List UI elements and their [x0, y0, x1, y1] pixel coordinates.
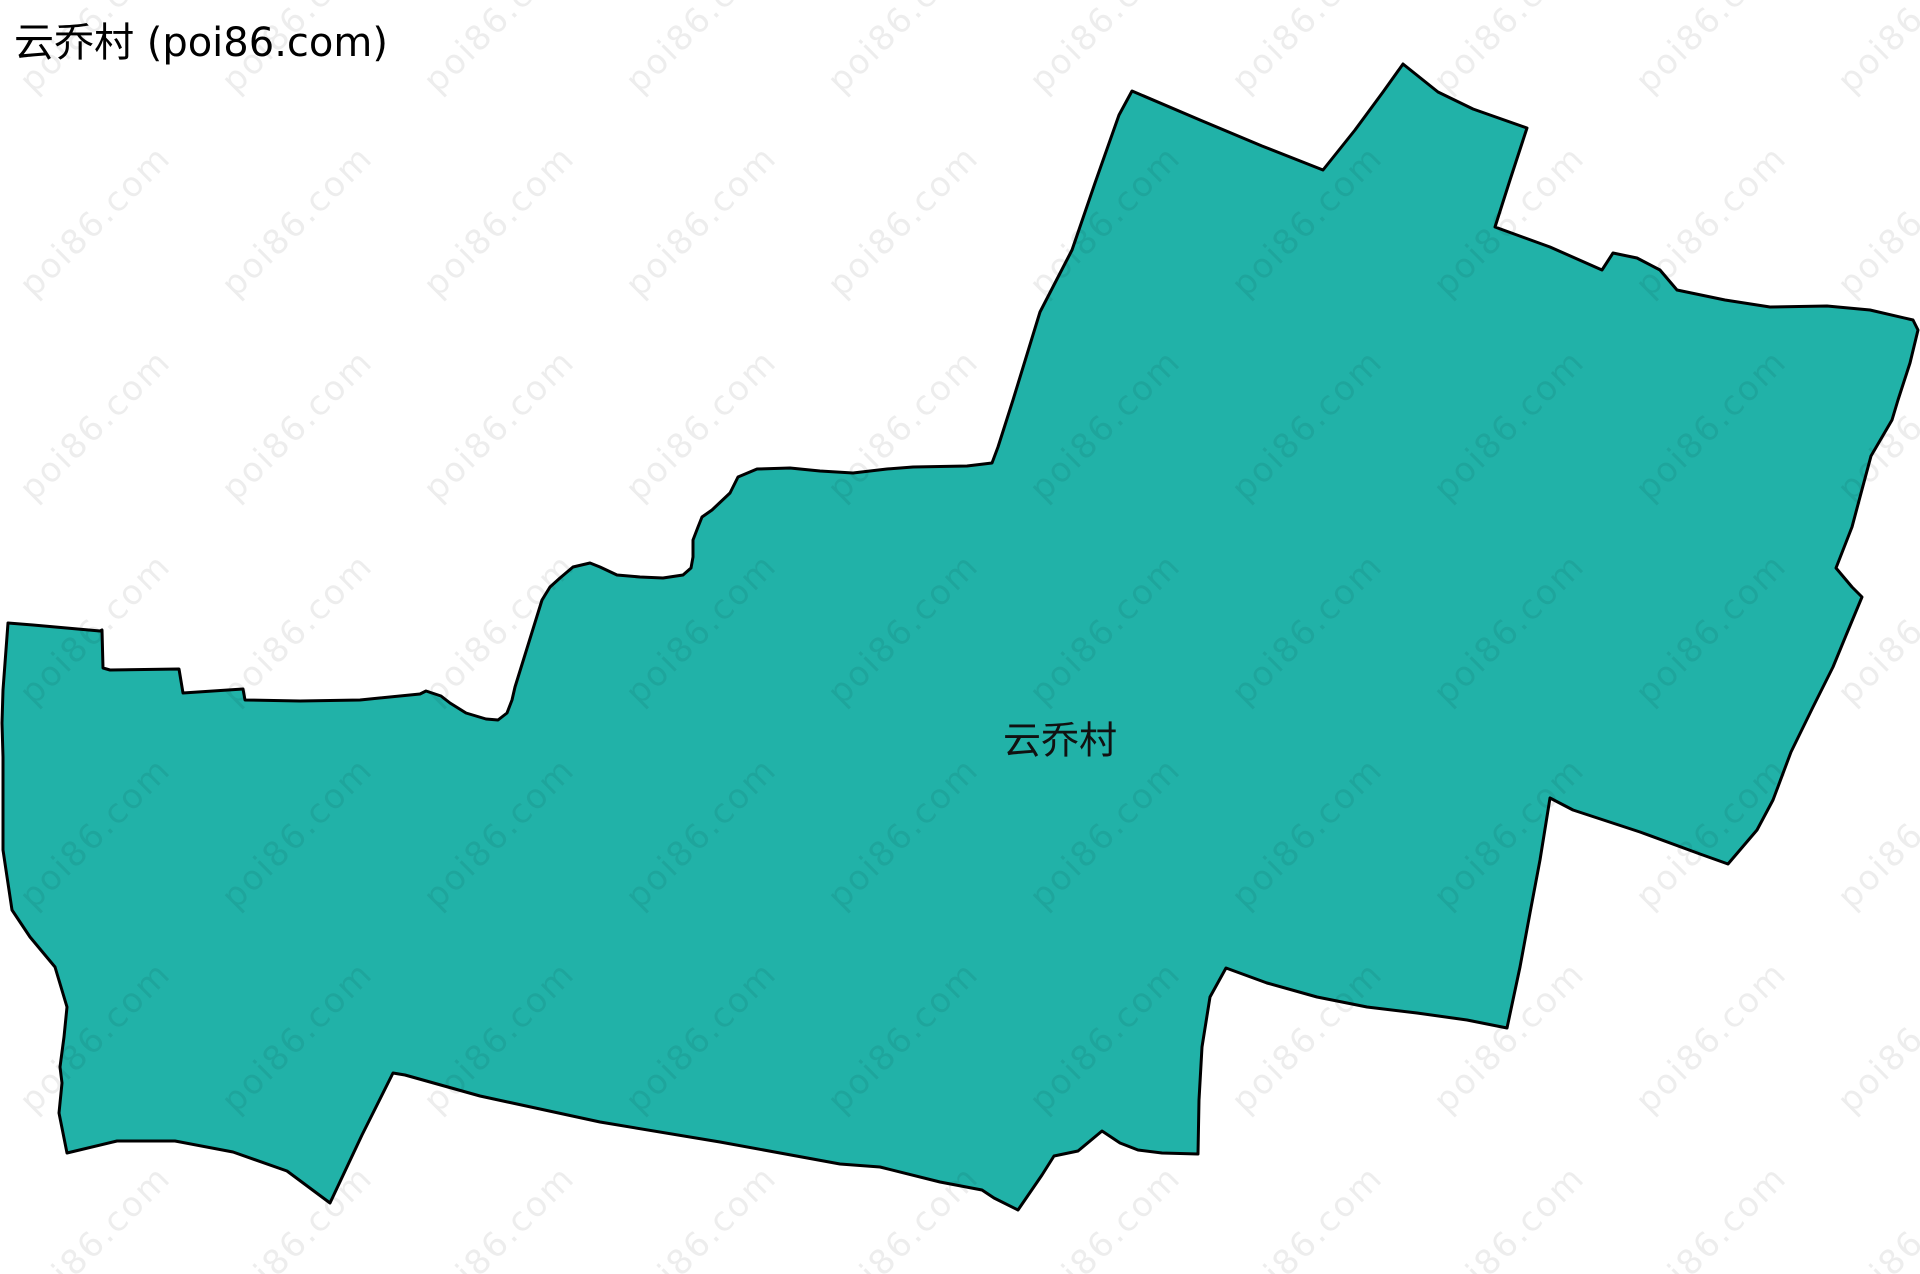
map-page: poi86.compoi86.compoi86.compoi86.compoi8… — [0, 0, 1920, 1274]
village-boundary-polygon — [2, 64, 1918, 1210]
village-boundary-map — [0, 0, 1920, 1274]
page-title: 云乔村 (poi86.com) — [14, 10, 388, 68]
region-label: 云乔村 — [1003, 710, 1117, 765]
